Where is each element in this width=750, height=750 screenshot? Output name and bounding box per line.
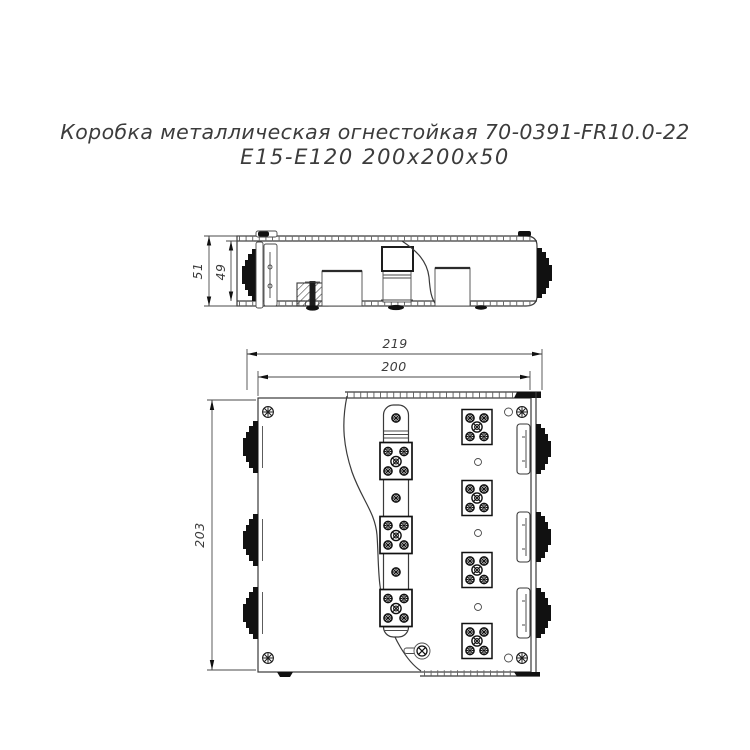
dim-label-200: 200 — [381, 359, 406, 374]
terminal-base-side — [383, 271, 411, 302]
component-box — [435, 268, 470, 306]
gland-plate — [256, 242, 263, 308]
screw-bump — [475, 305, 487, 309]
corner-screw-icon — [263, 653, 274, 664]
gland-flange — [517, 588, 530, 638]
bottom-screw-bump — [277, 672, 293, 677]
side-view — [237, 231, 552, 311]
dim-label-49: 49 — [213, 264, 228, 281]
terminal-block — [380, 443, 412, 480]
terminal-block — [462, 624, 492, 659]
corner-screw-icon — [517, 407, 528, 418]
technical-drawing: Коробка металлическая огнестойкая 70-039… — [0, 0, 750, 750]
dimension-width-inner: 200 — [258, 359, 530, 396]
lid-corner-wedge — [514, 392, 541, 398]
rail-screw-icon — [392, 494, 400, 502]
terminal-block — [462, 481, 492, 516]
corner-screw-icon — [517, 653, 528, 664]
gland-flange-plate — [264, 244, 277, 306]
dim-label-51: 51 — [190, 263, 205, 280]
corner-screw-icon — [263, 407, 274, 418]
rail-screw-icon — [392, 414, 400, 422]
bolt-head — [306, 305, 319, 310]
mounting-bolt — [310, 281, 316, 306]
terminal-block — [462, 553, 492, 588]
component-box — [322, 271, 362, 306]
terminal-block — [462, 410, 492, 445]
gland-flange — [517, 512, 530, 562]
cable-gland-icon — [243, 514, 258, 566]
top-view — [243, 392, 551, 677]
drawing-canvas: Коробка металлическая огнестойкая 70-039… — [0, 0, 750, 750]
lid-screw-cap — [518, 231, 531, 237]
drawing-title: Коробка металлическая огнестойкая 70-039… — [60, 120, 689, 169]
lid-corner-wedge — [514, 672, 540, 677]
cable-gland-icon — [536, 512, 551, 562]
dim-label-219: 219 — [382, 336, 407, 351]
cable-gland-icon — [537, 248, 552, 298]
gland-cap — [258, 232, 269, 237]
cable-gland-icon — [242, 249, 257, 301]
cable-gland-icon — [536, 424, 551, 474]
title-line-1: Коробка металлическая огнестойкая 70-039… — [60, 120, 689, 144]
terminal-block — [380, 517, 412, 554]
rail-screw-bump — [388, 305, 404, 310]
cable-gland-icon — [243, 587, 258, 639]
cable-gland-icon — [243, 421, 258, 473]
terminal-block — [380, 590, 412, 627]
cable-gland-icon — [536, 588, 551, 638]
dim-label-203: 203 — [192, 522, 207, 547]
rail-screw-icon — [392, 568, 400, 576]
title-line-2: Е15-Е120 200х200х50 — [240, 145, 510, 169]
gland-flange — [517, 424, 530, 474]
terminal-block-side — [382, 247, 413, 271]
